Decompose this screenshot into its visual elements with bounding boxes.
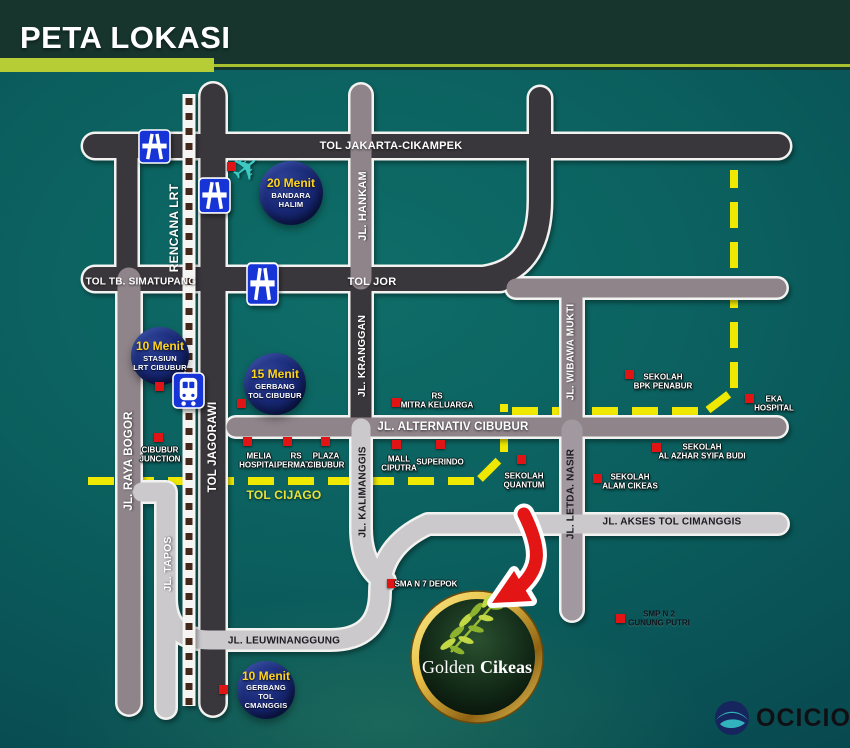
marker-cibubur-junction: [154, 433, 163, 442]
badge-line: TOL CIBUBUR: [248, 391, 302, 400]
road-label-tol-jor: TOL JOR: [348, 276, 397, 288]
landmark-label-sekolah-bpk-penabur: SEKOLAHBPK PENABUR: [634, 373, 693, 392]
highway-icon: [246, 262, 279, 311]
marker-rs-mitra-keluarga: [392, 398, 401, 407]
highway-icon: [138, 129, 171, 169]
landmark-label-sma-n-7-depok: SMA N 7 DEPOK: [395, 579, 458, 588]
badge-line: BANDARA: [271, 191, 310, 200]
road-label-jl-kalimanggis: JL. KALIMANGGIS: [358, 446, 369, 537]
landmark-label-cibubur-junction: CIBUBURJUNCTION: [140, 446, 181, 465]
watermark-text: OCICIO: [756, 704, 850, 733]
badge-line: STASIUN: [143, 354, 177, 363]
landmark-label-superindo: SUPERINDO: [416, 457, 464, 466]
train-icon: [172, 372, 205, 414]
landmark-label-sekolah-quantum: SEKOLAHQUANTUM: [504, 472, 545, 491]
road-label-jl-tapos: JL. TAPOS: [162, 536, 174, 591]
marker-gerbang-tol-cibubur-marker: [237, 399, 246, 408]
marker-mall-ciputra: [392, 440, 401, 449]
ocicio-logo-icon: [712, 698, 752, 738]
landmark-label-eka-hospital: EKAHOSPITAL: [754, 395, 794, 414]
road-label-jl-letda-nasir: JL. LETDA. NASIR: [566, 449, 577, 539]
landmark-label-rs-mitra-keluarga: RSMITRA KELUARGA: [401, 392, 474, 411]
badge-line: LRT CIBUBUR: [133, 363, 186, 372]
badge-line: GERBANG: [246, 683, 286, 692]
badge-minutes: 15 Menit: [251, 368, 299, 382]
marker-superindo: [436, 440, 445, 449]
road-label-jl-alternativ-cibubur: JL. ALTERNATIV CIBUBUR: [377, 421, 528, 433]
badge-line: HALIM: [279, 200, 304, 209]
marker-plaza-cibubur: [321, 437, 330, 446]
badge-line: TOL CMANGGIS: [237, 692, 295, 710]
road-label-tol-jagorawi: TOL JAGORAWI: [207, 402, 219, 493]
badge-minutes: 10 Menit: [242, 670, 290, 684]
road-label-jl-akses-tol-cimanggis: JL. AKSES TOL CIMANGGIS: [603, 517, 742, 528]
marker-sekolah-alam-cikeas: [593, 474, 602, 483]
marker-sekolah-quantum: [517, 455, 526, 464]
landmark-label-sekolah-al-azhar-syifa-budi: SEKOLAHAL AZHAR SYIFA BUDI: [658, 443, 745, 462]
travel-time-badge-gerbang-tol-cibubur: 15 MenitGERBANGTOL CIBUBUR: [244, 353, 306, 415]
marker-sekolah-bpk-penabur: [625, 370, 634, 379]
landmark-label-mall-ciputra: MALLCIPUTRA: [381, 455, 417, 474]
landmark-label-plaza-cibubur: PLAZACIBUBUR: [308, 452, 345, 471]
marker-stasiun-lrt-marker: [155, 382, 164, 391]
travel-time-badge-gerbang-tol-cmanggis: 10 MenitGERBANGTOL CMANGGIS: [237, 661, 295, 719]
landmark-label-melia-hospital: MELIAHOSPITAL: [239, 452, 279, 471]
road-label-tol-jakarta-cikampek: TOL JAKARTA-CIKAMPEK: [320, 140, 463, 152]
road-label-rencana-lrt: RENCANA LRT: [167, 184, 181, 272]
road-label-jl-raya-bogor: JL. RAYA BOGOR: [123, 411, 135, 510]
highway-icon: [198, 177, 231, 219]
road-label-tol-cijago: TOL CIJAGO: [247, 488, 322, 502]
location-map-flyer: GoldenCikeas PETA LOKASI TOL JAKARTA-CIK…: [0, 0, 850, 748]
watermark: OCICIO: [712, 698, 850, 738]
landmark-label-smp-n-2-gunung-putri: SMP N 2GUNUNG PUTRI: [628, 610, 690, 629]
road-label-jl-kranggan: JL. KRANGGAN: [356, 315, 368, 397]
travel-time-badge-bandara-halim: 20 MenitBANDARAHALIM: [259, 161, 323, 225]
road-label-tol-tb-simatupang: TOL TB. SIMATUPANG: [86, 277, 197, 288]
marker-eka-hospital: [745, 394, 754, 403]
landmark-label-sekolah-alam-cikeas: SEKOLAHALAM CIKEAS: [602, 473, 658, 492]
badge-minutes: 10 Menit: [136, 340, 184, 354]
road-label-jl-hankam: JL. HANKAM: [357, 171, 369, 241]
road-label-jl-wibawa-mukti: JL. WIBAWA MUKTI: [566, 304, 577, 401]
marker-smp-n-2-gunung-putri: [616, 614, 625, 623]
map-overlay: TOL JAKARTA-CIKAMPEKTOL TB. SIMATUPANGTO…: [0, 0, 850, 748]
marker-gerbang-tol-cmanggis-marker: [219, 685, 228, 694]
marker-melia-hospital: [243, 437, 252, 446]
marker-rs-permata: [283, 437, 292, 446]
badge-minutes: 20 Menit: [267, 177, 315, 191]
badge-line: GERBANG: [255, 382, 295, 391]
road-label-jl-leuwinanggung: JL. LEUWINANGGUNG: [228, 636, 340, 647]
